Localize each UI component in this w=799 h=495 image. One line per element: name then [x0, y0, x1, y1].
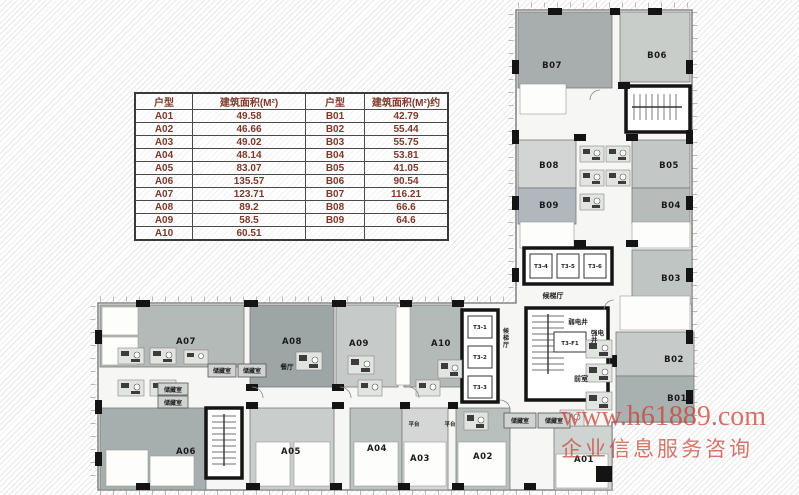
elevator-t3-1-label: T3-1	[473, 325, 487, 331]
unit-label-a10: A10	[431, 339, 451, 349]
watermark-url: www.h61889.com	[561, 401, 766, 433]
cell: A09	[135, 214, 193, 227]
cell: A10	[135, 227, 193, 241]
cell: 89.2	[193, 201, 306, 214]
cell: B02	[306, 123, 365, 136]
cell: 83.07	[193, 162, 306, 175]
col-header-type-b: 户型	[306, 93, 365, 110]
cell: 60.51	[193, 227, 306, 241]
stairwell-bottom-left	[206, 408, 242, 478]
unit-label-b08: B08	[539, 161, 559, 171]
cell: 55.44	[365, 123, 449, 136]
storage-label: 储藏室	[212, 367, 231, 375]
unit-label-a08: A08	[282, 337, 302, 347]
table-header-row: 户型 建筑面积(M²) 户型 建筑面积(M²)约	[135, 93, 448, 110]
elevator-t3-6-label: T3-6	[588, 264, 602, 270]
elevator-t3-3-label: T3-3	[473, 385, 487, 391]
cell: B09	[306, 214, 365, 227]
cell: 64.6	[365, 214, 449, 227]
cell: A08	[135, 201, 193, 214]
storage-label: 储藏室	[242, 367, 261, 375]
elevator-t3-f1-label: T3-F1	[561, 341, 579, 347]
unit-label-a05: A05	[281, 447, 301, 457]
cell: B07	[306, 188, 365, 201]
stairwell-top-right	[626, 86, 690, 132]
table-row: A07123.71B07116.21	[135, 188, 448, 201]
cell: B08	[306, 201, 365, 214]
cell: B04	[306, 149, 365, 162]
unit-b06	[620, 12, 690, 82]
cell: 116.21	[365, 188, 449, 201]
unit-label-b05: B05	[659, 161, 679, 171]
dining-label: 餐厅	[280, 362, 295, 371]
col-header-type-a: 户型	[135, 93, 193, 110]
col-header-area-b: 建筑面积(M²)约	[365, 93, 449, 110]
unit-b02	[616, 332, 694, 376]
lobby-vertical-label: 候梯厅	[503, 329, 511, 350]
unit-label-b09: B09	[539, 201, 559, 211]
cell: 123.71	[193, 188, 306, 201]
platform-label: 平台	[444, 420, 456, 428]
storage-label: 储藏室	[510, 417, 529, 425]
elevator-t3-2-label: T3-2	[473, 355, 487, 361]
table-row: A0448.14B0453.81	[135, 149, 448, 162]
cell: A04	[135, 149, 193, 162]
unit-label-b07: B07	[542, 61, 562, 71]
cell: 42.79	[365, 110, 449, 123]
cell: 55.75	[365, 136, 449, 149]
cell: B03	[306, 136, 365, 149]
cell: 48.14	[193, 149, 306, 162]
cell: 58.5	[193, 214, 306, 227]
table-row: A0583.07B0541.05	[135, 162, 448, 175]
unit-label-a02: A02	[473, 452, 493, 462]
cell: 46.66	[193, 123, 306, 136]
cell: A02	[135, 123, 193, 136]
elevator-bank-bottom: T3-1 T3-2 T3-3	[462, 310, 498, 402]
cell: B05	[306, 162, 365, 175]
cell: 135.57	[193, 175, 306, 188]
storage-label: 储藏室	[163, 399, 182, 407]
storage-label: 储藏室	[163, 386, 182, 394]
cell	[306, 227, 365, 241]
cell: B01	[306, 110, 365, 123]
unit-label-a07: A07	[176, 337, 196, 347]
unit-label-b03: B03	[661, 274, 681, 284]
elevator-bank-top: T3-4 T3-5 T3-6	[524, 248, 612, 284]
unit-label-a09: A09	[349, 339, 369, 349]
cell: A06	[135, 175, 193, 188]
table-row: A0149.58B0142.79	[135, 110, 448, 123]
cell: B06	[306, 175, 365, 188]
table-row: A0246.66B0255.44	[135, 123, 448, 136]
cell: 53.81	[365, 149, 449, 162]
front-room-label: 前室	[574, 374, 588, 383]
cell: 49.02	[193, 136, 306, 149]
cell: 66.6	[365, 201, 449, 214]
elevator-t3-4-label: T3-4	[534, 264, 548, 270]
floorplan-page: T3-4 T3-5 T3-6 T3-1 T3-2 T3-3 T3-F1	[0, 0, 799, 495]
unit-b07	[518, 12, 612, 88]
unit-label-a06: A06	[176, 447, 196, 457]
table-row: A0349.02B0355.75	[135, 136, 448, 149]
unit-label-a03: A03	[410, 454, 430, 464]
unit-label-a04: A04	[367, 444, 387, 454]
cell: A07	[135, 188, 193, 201]
cell: A03	[135, 136, 193, 149]
cell: 41.05	[365, 162, 449, 175]
elevator-t3-5-label: T3-5	[561, 264, 575, 270]
cell	[365, 227, 449, 241]
elevator-t3-f1: T3-F1	[554, 332, 586, 352]
col-header-area-a: 建筑面积(M²)	[193, 93, 306, 110]
cell: A05	[135, 162, 193, 175]
unit-label-b06: B06	[647, 51, 667, 61]
lobby-label: 候梯厅	[543, 291, 564, 300]
platform-label: 平台	[408, 420, 420, 428]
cell: A01	[135, 110, 193, 123]
table-row: A1060.51	[135, 227, 448, 241]
table-row: A0958.5B0964.6	[135, 214, 448, 227]
unit-label-b04: B04	[661, 201, 681, 211]
table-row: A06135.57B0690.54	[135, 175, 448, 188]
unit-label-b02: B02	[664, 355, 684, 365]
area-table: 户型 建筑面积(M²) 户型 建筑面积(M²)约 A0149.58B0142.7…	[134, 92, 449, 241]
strong-shaft-label: 强电井	[591, 330, 605, 345]
weak-shaft-label: 弱电井	[568, 317, 588, 326]
cell: 90.54	[365, 175, 449, 188]
table-row: A0889.2B0866.6	[135, 201, 448, 214]
cell: 49.58	[193, 110, 306, 123]
watermark-slogan: 企业信息服务咨询	[561, 433, 753, 463]
